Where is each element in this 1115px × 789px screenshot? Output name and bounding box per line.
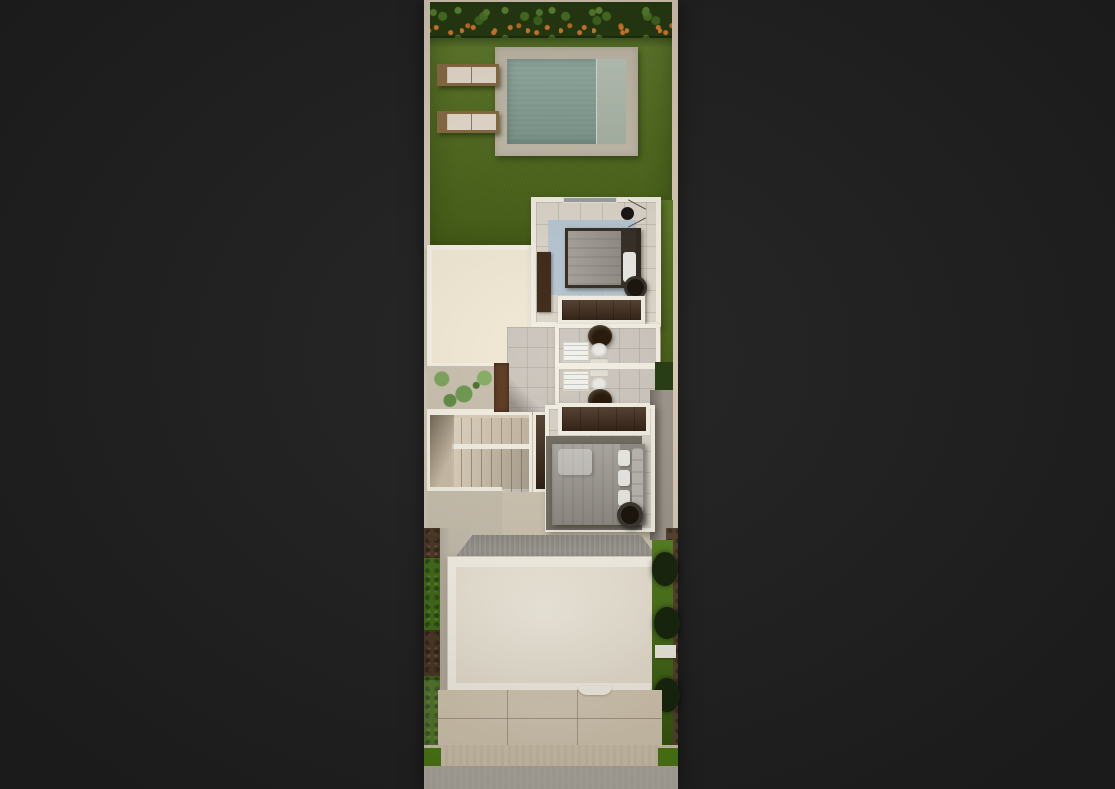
pavement-seam — [577, 690, 578, 748]
wardrobe-lower — [558, 403, 650, 435]
bed-duvet — [568, 231, 621, 285]
round-stool — [617, 502, 643, 528]
washbasin-unit-2 — [563, 371, 589, 391]
shrub — [654, 607, 680, 639]
toilet-tank — [590, 369, 608, 376]
street-road — [424, 766, 678, 789]
pavement-seam — [438, 718, 662, 719]
side-hedge-dark — [655, 362, 673, 392]
flowering-hedge — [427, 2, 673, 38]
washbasin-unit-1 — [563, 342, 589, 362]
wardrobe-upper — [558, 296, 645, 324]
pool-tanning-ledge — [596, 59, 626, 144]
wardrobe-interior — [562, 407, 646, 431]
screenshot-backdrop — [0, 0, 1115, 789]
lounger-seam — [471, 114, 472, 130]
hedge-soil — [424, 630, 440, 680]
driveway — [438, 690, 662, 748]
sun-lounger-2 — [437, 111, 499, 133]
stair-flight-upper — [452, 418, 529, 444]
pool-water — [507, 59, 626, 144]
hedge-green — [424, 558, 440, 634]
wardrobe-interior — [562, 300, 641, 320]
lawn-corner-left — [424, 748, 441, 766]
sun-lounger-1 — [437, 64, 499, 86]
garage-roof-slab — [456, 567, 653, 683]
staircase — [427, 412, 532, 492]
garage-roof — [447, 556, 662, 692]
stair-flight-lower — [452, 449, 529, 492]
lawn-corner-right — [658, 748, 678, 766]
toilet-bowl — [591, 343, 607, 357]
wall-stub — [655, 645, 676, 658]
bed-pillow — [618, 470, 630, 486]
pavement-seam — [507, 690, 508, 748]
planter-box — [494, 363, 509, 412]
bed-pillow — [618, 450, 630, 466]
floor-plan-render — [424, 0, 678, 789]
lounger-seam — [471, 67, 472, 83]
hedge-soil — [424, 528, 440, 562]
bedroom-window — [563, 197, 617, 203]
tripod-floor-lamp — [621, 207, 634, 220]
entry-step — [578, 686, 612, 695]
perimeter-wall-left — [424, 0, 430, 250]
pool-deck — [495, 47, 638, 156]
bed-fold — [558, 449, 592, 475]
shrub — [652, 552, 678, 586]
toilet-1 — [590, 343, 608, 365]
toilet-2 — [590, 369, 608, 391]
hallway — [507, 327, 558, 415]
tv-console — [537, 252, 551, 312]
sidewalk — [424, 745, 678, 767]
stair-winder-steps — [430, 415, 454, 489]
